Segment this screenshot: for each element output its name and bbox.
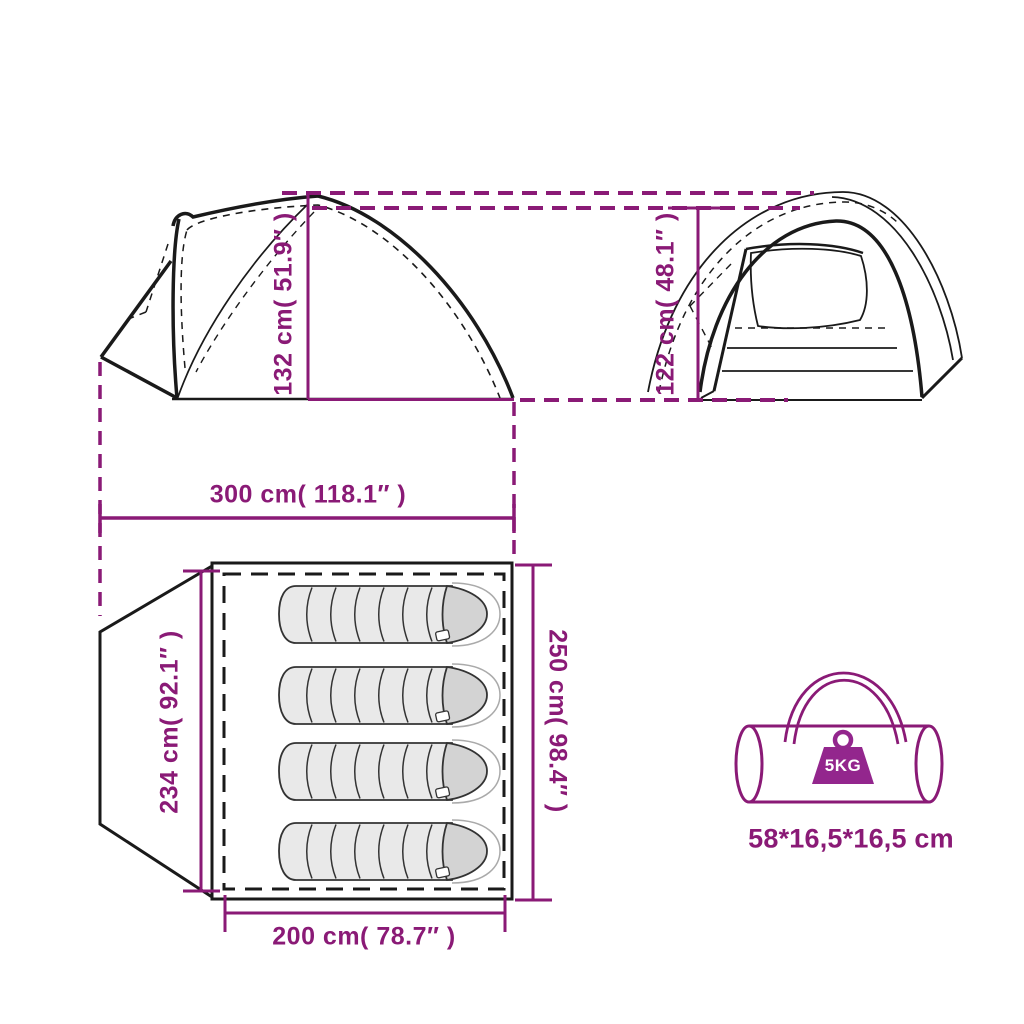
overall-width-label: 250 cm( 98.4″ ) — [543, 629, 572, 812]
tent-front-view-drawing — [648, 192, 962, 400]
inner-width-label: 234 cm( 92.1″ ) — [156, 630, 185, 813]
sleeping-bag-3 — [279, 740, 500, 803]
side-height-label: 132 cm( 51.9″ ) — [270, 212, 299, 395]
tent-dimension-diagram: 132 cm( 51.9″ ) 122 cm( 48.1″ ) 300 cm( … — [0, 0, 1024, 1024]
sleeping-bag-2 — [279, 664, 500, 727]
carry-bag-drawing — [736, 673, 942, 802]
front-height-label: 122 cm( 48.1″ ) — [652, 212, 681, 395]
packed-size-label: 58*16,5*16,5 cm — [748, 824, 954, 855]
sleeping-bag-1 — [279, 583, 500, 646]
sleeping-bag-4 — [279, 820, 500, 883]
diagram-linework — [0, 0, 1024, 1024]
overall-length-label: 300 cm( 118.1″ ) — [210, 481, 407, 510]
inner-length-label: 200 cm( 78.7″ ) — [272, 923, 455, 952]
weight-label: 5KG — [825, 756, 861, 776]
